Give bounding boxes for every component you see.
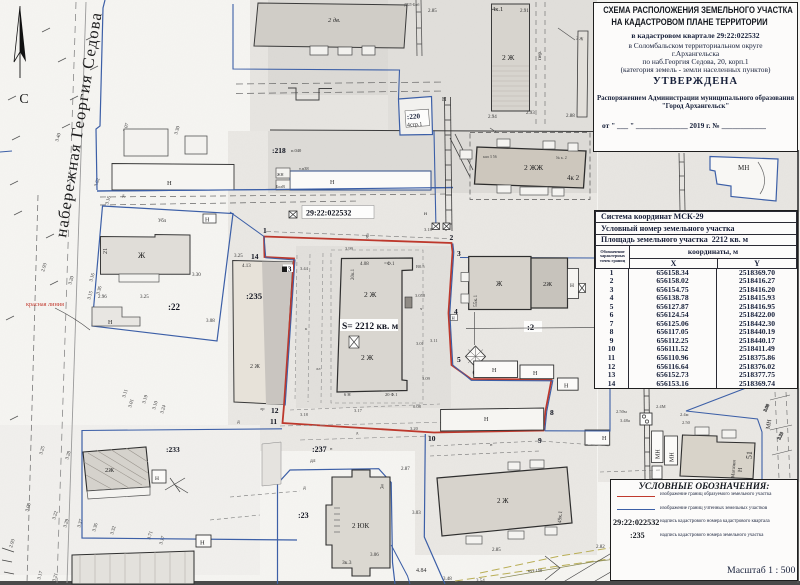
svg-text:14: 14: [251, 252, 259, 261]
svg-text:2 ЮК: 2 ЮК: [352, 522, 369, 530]
svg-text:№ к. 2: № к. 2: [556, 155, 567, 160]
svg-text:5: 5: [457, 355, 461, 364]
svg-text:МН: МН: [738, 164, 749, 172]
svg-text:4.13: 4.13: [242, 264, 251, 269]
svg-text:ЖН: ЖН: [277, 172, 284, 177]
svg-text:Н: Н: [108, 320, 113, 326]
svg-text:3.44: 3.44: [300, 266, 309, 271]
svg-text:3.08: 3.08: [206, 319, 215, 324]
svg-text:БолВ: БолВ: [276, 184, 285, 189]
svg-text:Ж: Ж: [496, 280, 503, 288]
svg-text:н: н: [424, 211, 427, 217]
svg-text:3.17: 3.17: [354, 408, 363, 413]
svg-text:Н: Н: [570, 283, 574, 289]
svg-text:2.85: 2.85: [492, 548, 501, 553]
svg-text:4к.1: 4к.1: [492, 6, 503, 13]
svg-text::237: :237: [312, 445, 327, 454]
svg-text:4стр.1: 4стр.1: [407, 122, 423, 129]
svg-text:1: 1: [263, 226, 267, 235]
svg-text:ДБЛ-Бпб: ДБЛ-Бпб: [404, 2, 419, 7]
svg-text:Н: Н: [492, 368, 497, 374]
svg-text:Н: Н: [330, 180, 335, 186]
svg-text:Н: Н: [602, 436, 607, 442]
svg-text:В0.5: В0.5: [416, 264, 425, 269]
svg-text:8: 8: [550, 408, 554, 417]
svg-text:п.040: п.040: [291, 148, 302, 153]
svg-text:3.25: 3.25: [234, 254, 243, 259]
svg-text:МН: МН: [656, 449, 662, 459]
svg-text::220: :220: [407, 112, 421, 121]
svg-text:3.18: 3.18: [424, 227, 433, 232]
svg-text:С: С: [19, 92, 28, 107]
svg-text:лл: лл: [316, 366, 321, 371]
svg-text:2.50: 2.50: [682, 420, 691, 425]
svg-text:д: д: [237, 419, 240, 425]
svg-text:Н: Н: [442, 97, 447, 103]
svg-text:Н: Н: [533, 371, 538, 377]
svg-text:2.93: 2.93: [526, 111, 535, 116]
svg-text:2.85: 2.85: [428, 9, 437, 14]
svg-text:6 Н: 6 Н: [344, 392, 351, 397]
svg-text:3.11: 3.11: [430, 338, 438, 343]
svg-text:2.91: 2.91: [520, 9, 529, 14]
svg-text:кап 3 56: кап 3 56: [483, 154, 497, 159]
svg-text:2 дв.: 2 дв.: [328, 17, 341, 24]
svg-text:Убл: Убл: [158, 219, 167, 224]
svg-text:21: 21: [103, 248, 109, 254]
svg-text:3.99: 3.99: [345, 246, 354, 251]
svg-text:9: 9: [538, 436, 542, 445]
svg-text:3.30: 3.30: [192, 273, 201, 278]
svg-text::235: :235: [246, 291, 263, 301]
svg-text:2 Ж: 2 Ж: [361, 353, 374, 362]
svg-text:3.20: 3.20: [410, 426, 419, 431]
svg-text:Н: Н: [205, 218, 210, 224]
svg-text::2: :2: [527, 322, 534, 332]
svg-text:2 Ж: 2 Ж: [250, 364, 261, 370]
svg-text:20к.1: 20к.1: [351, 268, 356, 280]
svg-text:20 Ф.1: 20 Ф.1: [385, 392, 398, 397]
svg-text:51: 51: [745, 451, 755, 460]
svg-text:2.4м: 2.4м: [680, 412, 689, 417]
svg-text:2.4М: 2.4М: [656, 404, 666, 409]
svg-text:МН: МН: [670, 452, 676, 462]
svg-text:3.058: 3.058: [415, 293, 426, 298]
svg-text:55к.1: 55к.1: [473, 294, 479, 307]
svg-text:3.18: 3.18: [300, 412, 309, 417]
svg-text:12: 12: [271, 406, 279, 415]
svg-text::22: :22: [168, 302, 180, 312]
svg-text:3.06: 3.06: [370, 553, 379, 558]
svg-text:4.84: 4.84: [416, 568, 427, 574]
svg-text:2 ЖЖ: 2 ЖЖ: [524, 163, 543, 172]
svg-text:2.94: 2.94: [488, 115, 497, 120]
svg-text:4.08: 4.08: [360, 262, 369, 267]
svg-text:=Ф.1: =Ф.1: [384, 262, 395, 267]
svg-text:3.25: 3.25: [140, 295, 149, 300]
svg-text:2.87: 2.87: [401, 467, 410, 472]
svg-text:29:22:022532: 29:22:022532: [306, 209, 351, 218]
svg-text::218: :218: [272, 146, 286, 155]
svg-text:3.48: 3.48: [443, 577, 452, 582]
svg-text:т.п38: т.п38: [299, 166, 309, 171]
svg-text:2 Ж: 2 Ж: [502, 53, 515, 62]
svg-text:0.08: 0.08: [413, 404, 422, 409]
svg-text:2.82: 2.82: [596, 545, 605, 550]
svg-text:лр: лр: [260, 406, 265, 411]
svg-text:4к 2: 4к 2: [567, 174, 580, 182]
svg-text::233: :233: [166, 445, 180, 454]
svg-text:д: д: [366, 232, 369, 238]
svg-text:Зк.3: Зк.3: [342, 560, 352, 566]
svg-text:Н: Н: [564, 384, 569, 390]
svg-text:3: 3: [457, 249, 461, 258]
svg-text:11: 11: [270, 417, 277, 426]
svg-text:2 Ж: 2 Ж: [364, 290, 377, 299]
svg-text:Н: Н: [167, 180, 172, 187]
svg-text:Н: Н: [155, 476, 159, 482]
svg-text:3.01: 3.01: [416, 341, 424, 346]
svg-text:2.50м: 2.50м: [616, 409, 627, 414]
svg-text:дл: дл: [310, 458, 316, 464]
svg-text:д: д: [303, 485, 306, 491]
svg-text:S= 2212 кв. м: S= 2212 кв. м: [342, 322, 399, 332]
svg-text:2Ж: 2Ж: [543, 281, 552, 288]
svg-text:2.96: 2.96: [98, 295, 107, 300]
svg-text:2 Ж: 2 Ж: [497, 497, 509, 505]
svg-text:Н: Н: [200, 540, 205, 547]
svg-text:пер.: пер.: [537, 50, 543, 60]
svg-text:2Ж: 2Ж: [105, 467, 114, 474]
svg-text:10: 10: [428, 434, 436, 443]
svg-text:3.09: 3.09: [422, 376, 431, 381]
svg-text::23: :23: [298, 511, 309, 520]
svg-text:2: 2: [450, 233, 454, 242]
svg-text:3.48а: 3.48а: [620, 418, 630, 423]
svg-text:кут 150: кут 150: [528, 568, 543, 573]
svg-text:Ж: Ж: [138, 251, 146, 260]
svg-text:3.03: 3.03: [412, 511, 421, 516]
svg-text:2.88: 2.88: [566, 114, 575, 119]
svg-text:Н: Н: [484, 417, 489, 423]
svg-text:3.54: 3.54: [476, 579, 485, 584]
svg-text:красная линия: красная линия: [26, 301, 64, 308]
svg-text:Д: Д: [380, 484, 384, 490]
